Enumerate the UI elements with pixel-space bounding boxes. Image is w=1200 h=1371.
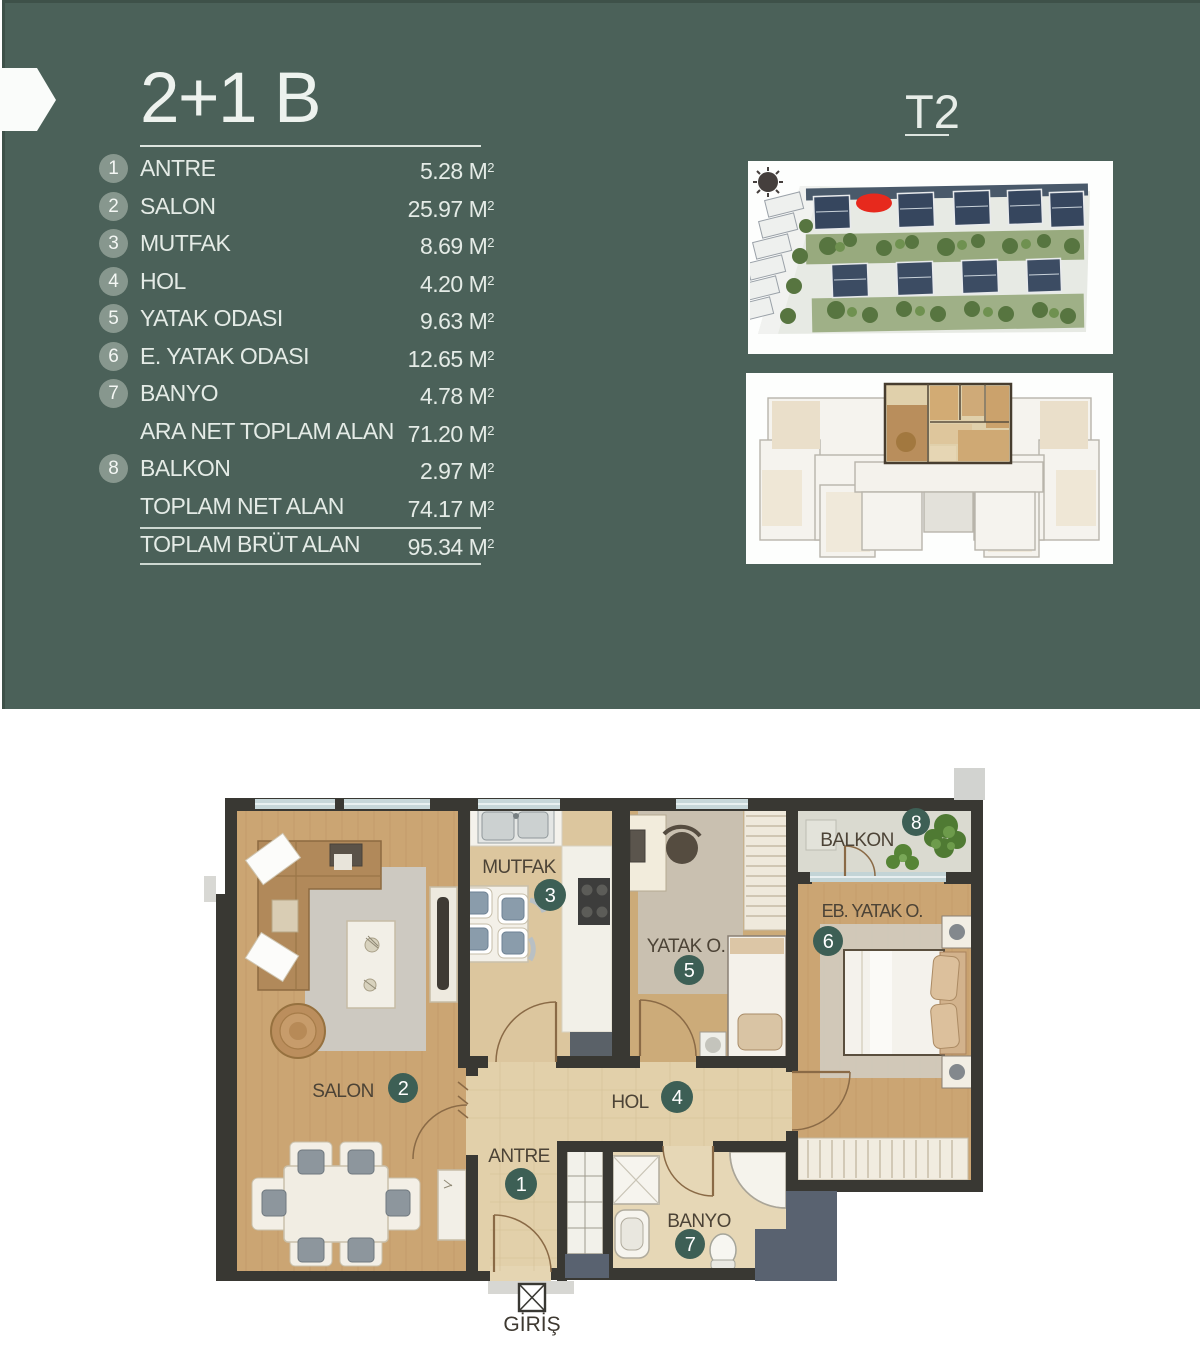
svg-text:3: 3 (545, 885, 556, 907)
svg-text:EB. YATAK O.: EB. YATAK O. (822, 901, 923, 921)
svg-text:HOL: HOL (611, 1092, 648, 1113)
svg-text:2: 2 (398, 1078, 409, 1100)
svg-text:5: 5 (684, 960, 695, 982)
svg-text:MUTFAK: MUTFAK (482, 857, 556, 878)
svg-text:1: 1 (516, 1174, 527, 1196)
svg-text:GİRİŞ: GİRİŞ (503, 1313, 560, 1336)
svg-text:SALON: SALON (312, 1081, 373, 1102)
svg-text:BALKON: BALKON (820, 830, 894, 851)
svg-text:7: 7 (685, 1234, 696, 1256)
svg-text:YATAK O.: YATAK O. (647, 936, 726, 957)
svg-text:8: 8 (911, 813, 921, 834)
svg-text:BANYO: BANYO (667, 1211, 731, 1232)
svg-text:4: 4 (672, 1087, 683, 1109)
svg-text:6: 6 (823, 931, 834, 953)
svg-text:ANTRE: ANTRE (488, 1146, 549, 1167)
